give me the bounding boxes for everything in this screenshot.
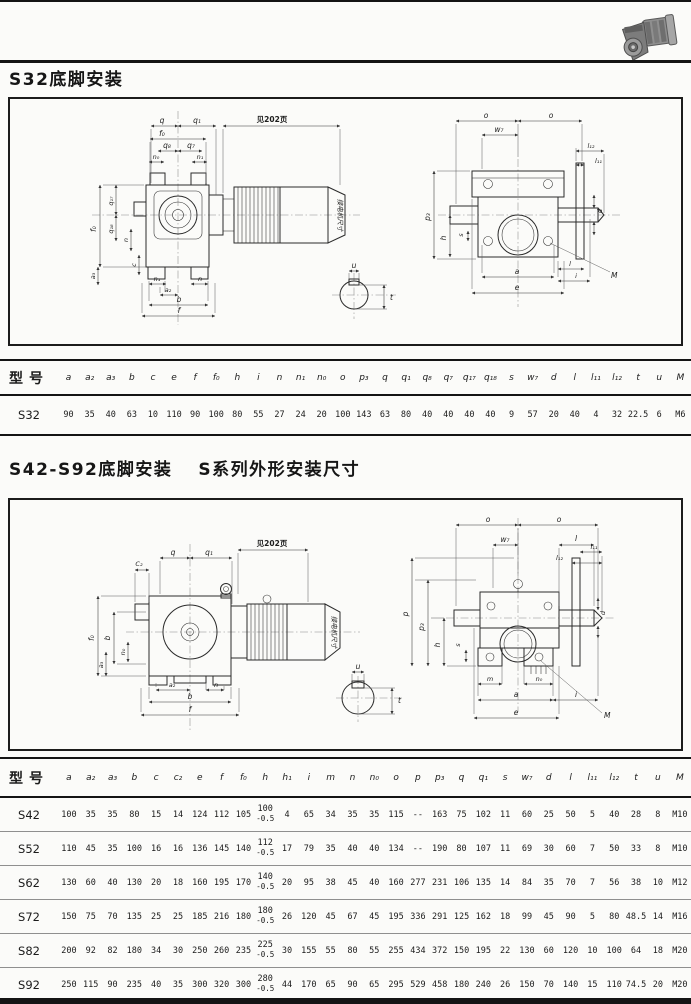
column-header: h₁	[276, 758, 298, 797]
value-cell: 35	[538, 866, 560, 900]
dim-label-u-2: u	[356, 662, 361, 671]
value-cell: 14	[167, 797, 189, 832]
value-cell: M10	[669, 797, 691, 832]
value-cell: M12	[669, 866, 691, 900]
value-cell: --	[407, 797, 429, 832]
column-header: l₁₁	[582, 758, 604, 797]
dim-label-i: i	[575, 272, 577, 280]
dim-label-n0-right: n₀	[536, 675, 543, 683]
gearmotor-image	[616, 12, 680, 64]
dim-label-s: s	[457, 233, 465, 237]
value-line: -0.5	[254, 917, 276, 926]
value-cell: 7	[582, 866, 604, 900]
value-cell: 6	[649, 395, 670, 435]
value-cell: 130	[516, 934, 538, 968]
value-cell: 130	[123, 866, 145, 900]
value-cell: 135	[123, 900, 145, 934]
value-cell: 255	[385, 934, 407, 968]
motor-note: 接电机尺寸	[336, 199, 344, 233]
value-cell: 110	[58, 832, 80, 866]
s32-dimension-table: 型号aa₂a₃bceff₀hinn₁n₀op₃qq₁q₈q₇q₁₇q₁₈sw₇d…	[0, 359, 691, 436]
value-cell: 92	[80, 934, 102, 968]
dim-label-w7-2: w₇	[500, 535, 509, 544]
value-cell: 200	[58, 934, 80, 968]
value-cell: 185	[189, 900, 211, 934]
dim-label-a: a	[515, 267, 520, 276]
column-header: i	[248, 360, 269, 395]
table-row: S329035406310110901008055272420100143638…	[0, 395, 691, 435]
value-cell: --	[407, 832, 429, 866]
value-cell: 34	[320, 797, 342, 832]
section1-title: S32底脚安装	[9, 65, 123, 90]
value-cell: 20	[145, 866, 167, 900]
value-cell: 100	[332, 395, 353, 435]
value-cell: 160	[189, 866, 211, 900]
column-header: n₀	[311, 360, 332, 395]
bottom-rule	[0, 998, 691, 1001]
value-cell: 67	[342, 900, 364, 934]
table-row: S8220092821803430250260235225-0.53015555…	[0, 934, 691, 968]
value-line: -0.5	[254, 985, 276, 994]
value-cell: 45	[342, 866, 364, 900]
value-cell: 35	[79, 395, 100, 435]
value-cell: 40	[363, 832, 385, 866]
value-cell: 291	[429, 900, 451, 934]
value-cell: 125	[451, 900, 473, 934]
value-cell: 95	[298, 866, 320, 900]
dim-label-n-2: n	[214, 681, 218, 689]
column-header: d	[538, 758, 560, 797]
value-cell: 14	[647, 900, 669, 934]
dim-label-b: b	[177, 295, 182, 304]
column-header: n₀	[363, 758, 385, 797]
dim-label-t: t	[390, 293, 394, 302]
value-cell: 155	[298, 934, 320, 968]
column-header: a₂	[80, 758, 102, 797]
value-cell: 38	[320, 866, 342, 900]
value-cell: 25	[167, 900, 189, 934]
column-header: q₈	[417, 360, 438, 395]
value-cell: 107	[472, 832, 494, 866]
value-cell: 100	[206, 395, 227, 435]
value-cell: 63	[121, 395, 142, 435]
column-header: l₁₂	[603, 758, 625, 797]
s42-s92-technical-drawing: 接电机尺寸 C₂ q q₁ 见202页 f₀ b n₀	[10, 500, 681, 749]
value-cell: 22	[494, 934, 516, 968]
value-cell: 180-0.5	[254, 900, 276, 934]
dim-label-c: c	[130, 263, 138, 267]
value-cell: 40	[564, 395, 585, 435]
value-cell: 140	[233, 832, 255, 866]
value-cell: 140-0.5	[254, 866, 276, 900]
model-cell: S62	[0, 866, 58, 900]
dim-label-f0-2: f₀	[87, 635, 96, 641]
value-cell: 35	[342, 797, 364, 832]
column-header: f	[185, 360, 206, 395]
value-cell: 250	[189, 934, 211, 968]
column-header: c	[145, 758, 167, 797]
value-line: -0.5	[254, 883, 276, 892]
value-cell: 106	[451, 866, 473, 900]
value-cell: 55	[248, 395, 269, 435]
value-cell: 135	[472, 866, 494, 900]
value-cell: 40	[100, 395, 121, 435]
dim-label-p3: p₃	[423, 213, 432, 222]
value-cell: 50	[603, 832, 625, 866]
value-cell: 45	[80, 832, 102, 866]
value-cell: 180	[233, 900, 255, 934]
value-cell: 40	[603, 797, 625, 832]
value-cell: 434	[407, 934, 429, 968]
value-cell: 231	[429, 866, 451, 900]
value-cell: 112-0.5	[254, 832, 276, 866]
column-header: M	[670, 360, 691, 395]
dim-label-l12: l₁₂	[587, 142, 594, 150]
value-cell: 80	[227, 395, 248, 435]
value-cell: 10	[582, 934, 604, 968]
value-cell: 25	[538, 797, 560, 832]
dim-label-t-2: t	[398, 696, 402, 705]
value-cell: 102	[472, 797, 494, 832]
s4292-side-view: o o w₇ l l₁₂ l₁₁ p p₃ h s d	[401, 515, 616, 720]
section2-title-b: S系列外形安装尺寸	[198, 460, 360, 480]
dim-label-l-2: l	[575, 534, 578, 543]
s42-s92-figure-box: 接电机尺寸 C₂ q q₁ 见202页 f₀ b n₀	[8, 498, 683, 751]
value-cell: 20	[311, 395, 332, 435]
value-cell: 45	[538, 900, 560, 934]
column-header: q₁	[396, 360, 417, 395]
dim-label-a2-2: a₂	[169, 681, 176, 689]
section2-title: S42-S92底脚安装S系列外形安装尺寸	[9, 455, 360, 480]
column-header: n	[269, 360, 290, 395]
value-cell: 120	[298, 900, 320, 934]
value-cell: 170	[233, 866, 255, 900]
motor-note-2: 接电机尺寸	[330, 616, 338, 650]
value-cell: 60	[538, 934, 560, 968]
dim-label-e: e	[515, 283, 520, 292]
value-cell: 130	[58, 866, 80, 900]
value-cell: 45	[320, 900, 342, 934]
column-header: l	[564, 360, 585, 395]
model-cell: S32	[0, 395, 58, 435]
value-cell: 16	[145, 832, 167, 866]
dim-label-n-left: n	[122, 238, 130, 242]
value-cell: 40	[480, 395, 501, 435]
value-cell: 195	[211, 866, 233, 900]
value-cell: 18	[167, 866, 189, 900]
value-cell: 35	[80, 797, 102, 832]
value-cell: 50	[560, 797, 582, 832]
value-cell: 277	[407, 866, 429, 900]
column-header: t	[628, 360, 649, 395]
see-page-note-2: 见202页	[257, 539, 288, 548]
dim-label-l11: l₁₁	[595, 157, 602, 165]
column-header: c₂	[167, 758, 189, 797]
value-cell: 14	[494, 866, 516, 900]
value-cell: 30	[167, 934, 189, 968]
value-cell: 22.5	[628, 395, 649, 435]
value-cell: 105	[233, 797, 255, 832]
value-cell: 45	[363, 900, 385, 934]
column-header: u	[649, 360, 670, 395]
value-cell: M16	[669, 900, 691, 934]
value-cell: 4	[276, 797, 298, 832]
value-cell: 216	[211, 900, 233, 934]
value-cell: 20	[276, 866, 298, 900]
value-cell: 56	[603, 866, 625, 900]
model-cell: S42	[0, 797, 58, 832]
column-header: M	[669, 758, 691, 797]
model-cell: S82	[0, 934, 58, 968]
table-row: S7215075701352525185216180180-0.52612045…	[0, 900, 691, 934]
column-header: q₁	[472, 758, 494, 797]
column-header: a₃	[100, 360, 121, 395]
value-cell: 90	[185, 395, 206, 435]
column-header: l₁₁	[585, 360, 606, 395]
dim-label-n0: n₀	[153, 153, 160, 161]
column-header: b	[121, 360, 142, 395]
column-header: l₁₂	[606, 360, 627, 395]
value-cell: 134	[385, 832, 407, 866]
column-header: n₁	[290, 360, 311, 395]
dim-label-d: d	[596, 208, 604, 213]
value-cell: 32	[606, 395, 627, 435]
value-cell: 40	[342, 832, 364, 866]
value-cell: 35	[102, 797, 124, 832]
value-cell: 4	[585, 395, 606, 435]
value-cell: 15	[145, 797, 167, 832]
column-header: t	[625, 758, 647, 797]
value-cell: 115	[385, 797, 407, 832]
value-cell: 79	[298, 832, 320, 866]
column-header: o	[385, 758, 407, 797]
dim-label-p3-2: p₃	[417, 623, 426, 632]
dim-label-M-2: M	[604, 711, 611, 720]
value-cell: 75	[451, 797, 473, 832]
value-cell: 145	[211, 832, 233, 866]
dim-label-f: f	[178, 306, 182, 315]
column-header: f₀	[233, 758, 255, 797]
column-header: w₇	[522, 360, 543, 395]
value-cell: 26	[276, 900, 298, 934]
value-cell: 8	[647, 797, 669, 832]
value-cell: 10	[142, 395, 163, 435]
value-cell: 100-0.5	[254, 797, 276, 832]
value-cell: 40	[363, 866, 385, 900]
value-cell: 190	[429, 832, 451, 866]
s32-front-view: 接电机尺寸 q q₁ 见202页 f₀ q₈ q₇ n₀ n₁	[89, 111, 360, 325]
model-cell: S72	[0, 900, 58, 934]
value-cell: 25	[145, 900, 167, 934]
dim-label-n0-2: n₀	[119, 648, 127, 655]
value-cell: 70	[102, 900, 124, 934]
top-rule	[0, 0, 691, 2]
value-cell: 10	[647, 866, 669, 900]
dim-label-q18: q₁₈	[107, 224, 115, 234]
value-cell: 40	[417, 395, 438, 435]
dim-label-q1-2: q₁	[205, 548, 213, 557]
value-cell: 124	[189, 797, 211, 832]
value-cell: 80	[451, 832, 473, 866]
dim-label-b-2: b	[188, 692, 193, 701]
value-cell: 5	[582, 797, 604, 832]
column-header: n	[342, 758, 364, 797]
value-cell: 18	[647, 934, 669, 968]
dim-label-q17: q₁₇	[107, 196, 115, 206]
value-cell: 33	[625, 832, 647, 866]
table-row: S5211045351001616136145140112-0.51779354…	[0, 832, 691, 866]
table-row: S421003535801514124112105100-0.546534353…	[0, 797, 691, 832]
value-cell: 60	[516, 797, 538, 832]
column-header: a₂	[79, 360, 100, 395]
s42-s92-dimension-table: 型号aa₂a₃bcc₂eff₀hh₁imnn₀opp₃qq₁sw₇dll₁₁l₁…	[0, 757, 691, 1004]
value-cell: 24	[290, 395, 311, 435]
column-header: p	[407, 758, 429, 797]
dim-label-a3-2: a₃	[97, 661, 105, 668]
model-column-header: 型号	[0, 360, 58, 395]
dim-label-c2: C₂	[135, 560, 143, 568]
dim-label-q8: q₈	[163, 141, 171, 150]
s32-technical-drawing: 接电机尺寸 q q₁ 见202页 f₀ q₈ q₇ n₀ n₁	[10, 99, 681, 344]
value-cell: 11	[494, 797, 516, 832]
value-cell: 80	[123, 797, 145, 832]
value-cell: 64	[625, 934, 647, 968]
value-cell: 136	[189, 832, 211, 866]
value-cell: 110	[163, 395, 184, 435]
value-cell: 35	[102, 832, 124, 866]
dim-label-a-2: a	[514, 690, 519, 699]
column-header: f	[211, 758, 233, 797]
column-header: o	[332, 360, 353, 395]
dim-label-o-2: o	[486, 515, 491, 524]
dim-label-l12-2: l₁₂	[556, 554, 563, 562]
dim-label-l11-2: l₁₁	[590, 543, 597, 551]
s4292-front-view: 接电机尺寸 C₂ q q₁ 见202页 f₀ b n₀	[87, 539, 360, 732]
see-page-note: 见202页	[257, 115, 288, 124]
column-header: p₃	[353, 360, 374, 395]
column-header: l	[560, 758, 582, 797]
value-cell: 18	[494, 900, 516, 934]
column-header: a₃	[102, 758, 124, 797]
value-cell: 260	[211, 934, 233, 968]
value-cell: 235	[233, 934, 255, 968]
value-cell: 143	[353, 395, 374, 435]
value-cell: 34	[145, 934, 167, 968]
model-column-header: 型号	[0, 758, 58, 797]
dim-label-f-2: f	[189, 705, 193, 714]
dim-label-o: o	[484, 111, 489, 120]
value-cell: 372	[429, 934, 451, 968]
s32-figure-box: 接电机尺寸 q q₁ 见202页 f₀ q₈ q₇ n₀ n₁	[8, 97, 683, 346]
column-header: q	[374, 360, 395, 395]
dim-label-u: u	[352, 261, 357, 270]
value-cell: 55	[320, 934, 342, 968]
section1-rule	[0, 60, 691, 63]
value-cell: 5	[582, 900, 604, 934]
dim-label-w7: w₇	[494, 125, 503, 134]
value-cell: 28	[625, 797, 647, 832]
dim-label-m-2: m	[487, 675, 493, 683]
value-cell: M10	[669, 832, 691, 866]
value-line: -0.5	[254, 815, 276, 824]
value-cell: 63	[374, 395, 395, 435]
catalog-page: S32底脚安装	[0, 0, 691, 1004]
column-header: s	[501, 360, 522, 395]
value-cell: 100	[58, 797, 80, 832]
dim-label-q7: q₇	[187, 141, 195, 150]
value-cell: 150	[58, 900, 80, 934]
dim-label-M: M	[611, 271, 618, 280]
value-cell: 70	[560, 866, 582, 900]
value-cell: 336	[407, 900, 429, 934]
value-cell: 20	[543, 395, 564, 435]
dim-label-p-2: p	[401, 611, 410, 617]
value-cell: 65	[298, 797, 320, 832]
value-cell: 55	[363, 934, 385, 968]
value-cell: 195	[385, 900, 407, 934]
column-header: q₁₇	[459, 360, 480, 395]
column-header: p₃	[429, 758, 451, 797]
value-cell: 60	[80, 866, 102, 900]
value-cell: 9	[501, 395, 522, 435]
s4292-shaft-section: u t	[336, 662, 404, 722]
column-header: c	[142, 360, 163, 395]
value-line: -0.5	[254, 849, 276, 858]
value-line: -0.5	[254, 951, 276, 960]
value-cell: 8	[647, 832, 669, 866]
dim-label-o2: o	[549, 111, 554, 120]
value-cell: 30	[538, 832, 560, 866]
motor-2: 接电机尺寸	[231, 595, 340, 660]
dim-label-l: l	[569, 260, 571, 268]
dim-label-n: n	[198, 275, 202, 283]
value-cell: 27	[269, 395, 290, 435]
dim-label-b-left: b	[103, 635, 112, 640]
value-cell: 17	[276, 832, 298, 866]
value-cell: 75	[80, 900, 102, 934]
value-cell: 69	[516, 832, 538, 866]
column-header: e	[163, 360, 184, 395]
column-header: e	[189, 758, 211, 797]
value-cell: 82	[102, 934, 124, 968]
value-cell: 30	[276, 934, 298, 968]
value-cell: 225-0.5	[254, 934, 276, 968]
value-cell: 195	[472, 934, 494, 968]
value-cell: 60	[560, 832, 582, 866]
section2-title-a: S42-S92底脚安装	[9, 460, 172, 480]
value-cell: 150	[451, 934, 473, 968]
value-cell: 180	[123, 934, 145, 968]
value-cell: 100	[123, 832, 145, 866]
value-cell: 11	[494, 832, 516, 866]
column-header: a	[58, 360, 79, 395]
column-header: q₁₈	[480, 360, 501, 395]
dim-label-f0: f₀	[89, 226, 98, 232]
column-header: h	[254, 758, 276, 797]
header-row: 型号aa₂a₃bceff₀hinn₁n₀op₃qq₁q₈q₇q₁₇q₁₈sw₇d…	[0, 360, 691, 395]
dim-label-n1: n₁	[154, 275, 161, 283]
value-cell: 90	[560, 900, 582, 934]
column-header: s	[494, 758, 516, 797]
value-cell: 160	[385, 866, 407, 900]
dim-label-q1: q₁	[193, 116, 201, 125]
column-header: h	[227, 360, 248, 395]
dim-label-q-2: q	[171, 548, 176, 557]
column-header: i	[298, 758, 320, 797]
dim-label-a3: a₃	[89, 272, 97, 279]
dim-label-d-2: d	[599, 610, 607, 615]
dim-label-a2: a₂	[165, 286, 172, 294]
